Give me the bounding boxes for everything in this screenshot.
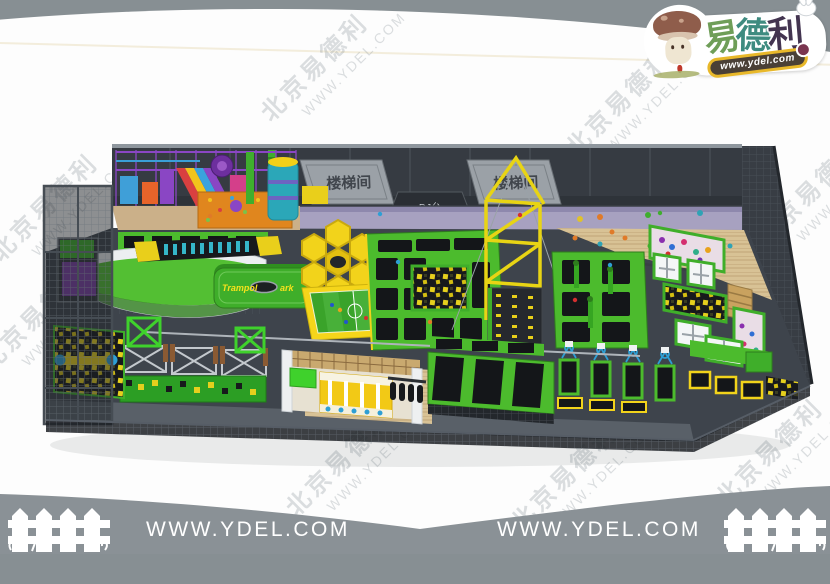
picket-fence-icon [8, 504, 110, 552]
footer-url-left: WWW.YDEL.COM [146, 518, 350, 542]
trampoline-park-sign: Trampol ark [214, 264, 314, 308]
climbing-wall [488, 288, 542, 344]
foam-pit-center [412, 266, 468, 310]
logo-url-text: www.ydel.com [720, 52, 796, 72]
green-sofa [290, 368, 316, 388]
right-trampoline-courts [552, 252, 648, 348]
brand-logo: 易德利 www.ydel.com [642, 0, 828, 87]
left-fence [44, 186, 112, 424]
stair-sign-text: 楼梯间 [326, 173, 372, 193]
picket-fence-icon [724, 504, 826, 552]
footer-url-right: WWW.YDEL.COM [497, 518, 701, 542]
footer-band [0, 474, 830, 554]
promo-page: { "colors": { "background_gray": "#878f9… [0, 0, 830, 554]
snack-counter [320, 372, 392, 418]
airbag-mat [688, 260, 714, 288]
airbag-mat [654, 254, 680, 282]
teal-cylinder [268, 157, 298, 220]
park-sign-text: ark [280, 283, 295, 293]
park-sign-text: Trampol [222, 283, 258, 293]
